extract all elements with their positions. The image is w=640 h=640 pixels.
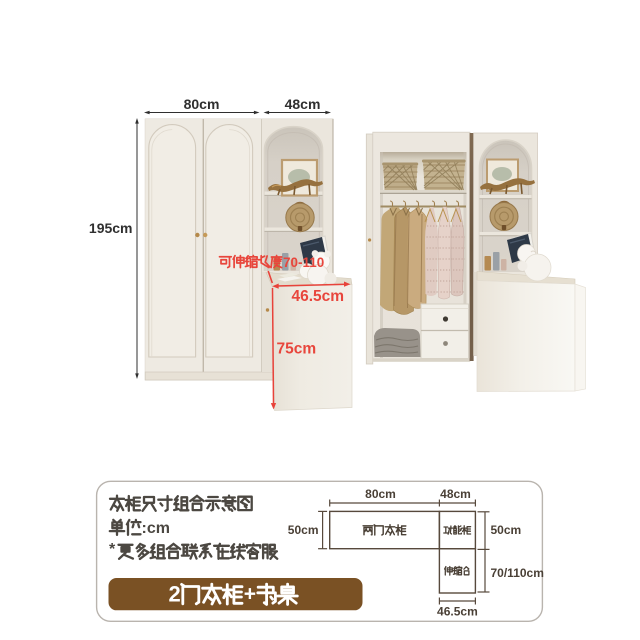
svg-text:2: 2 [169,582,181,607]
svg-text:70-110: 70-110 [283,255,324,270]
svg-text:*: * [109,541,116,558]
svg-text:75cm: 75cm [277,341,317,358]
svg-text:195cm: 195cm [89,220,133,236]
svg-text:46.5cm: 46.5cm [292,288,345,305]
svg-text:48cm: 48cm [285,96,321,112]
svg-text:46.5cm: 46.5cm [437,605,478,619]
svg-text:70/110cm: 70/110cm [491,566,544,580]
svg-text:80cm: 80cm [184,96,220,112]
svg-text::cm: :cm [142,520,170,537]
svg-text:50cm: 50cm [491,523,522,537]
svg-text:50cm: 50cm [288,523,319,537]
svg-text:+: + [244,583,256,606]
svg-text:80cm: 80cm [365,487,396,501]
svg-text:48cm: 48cm [440,487,471,501]
